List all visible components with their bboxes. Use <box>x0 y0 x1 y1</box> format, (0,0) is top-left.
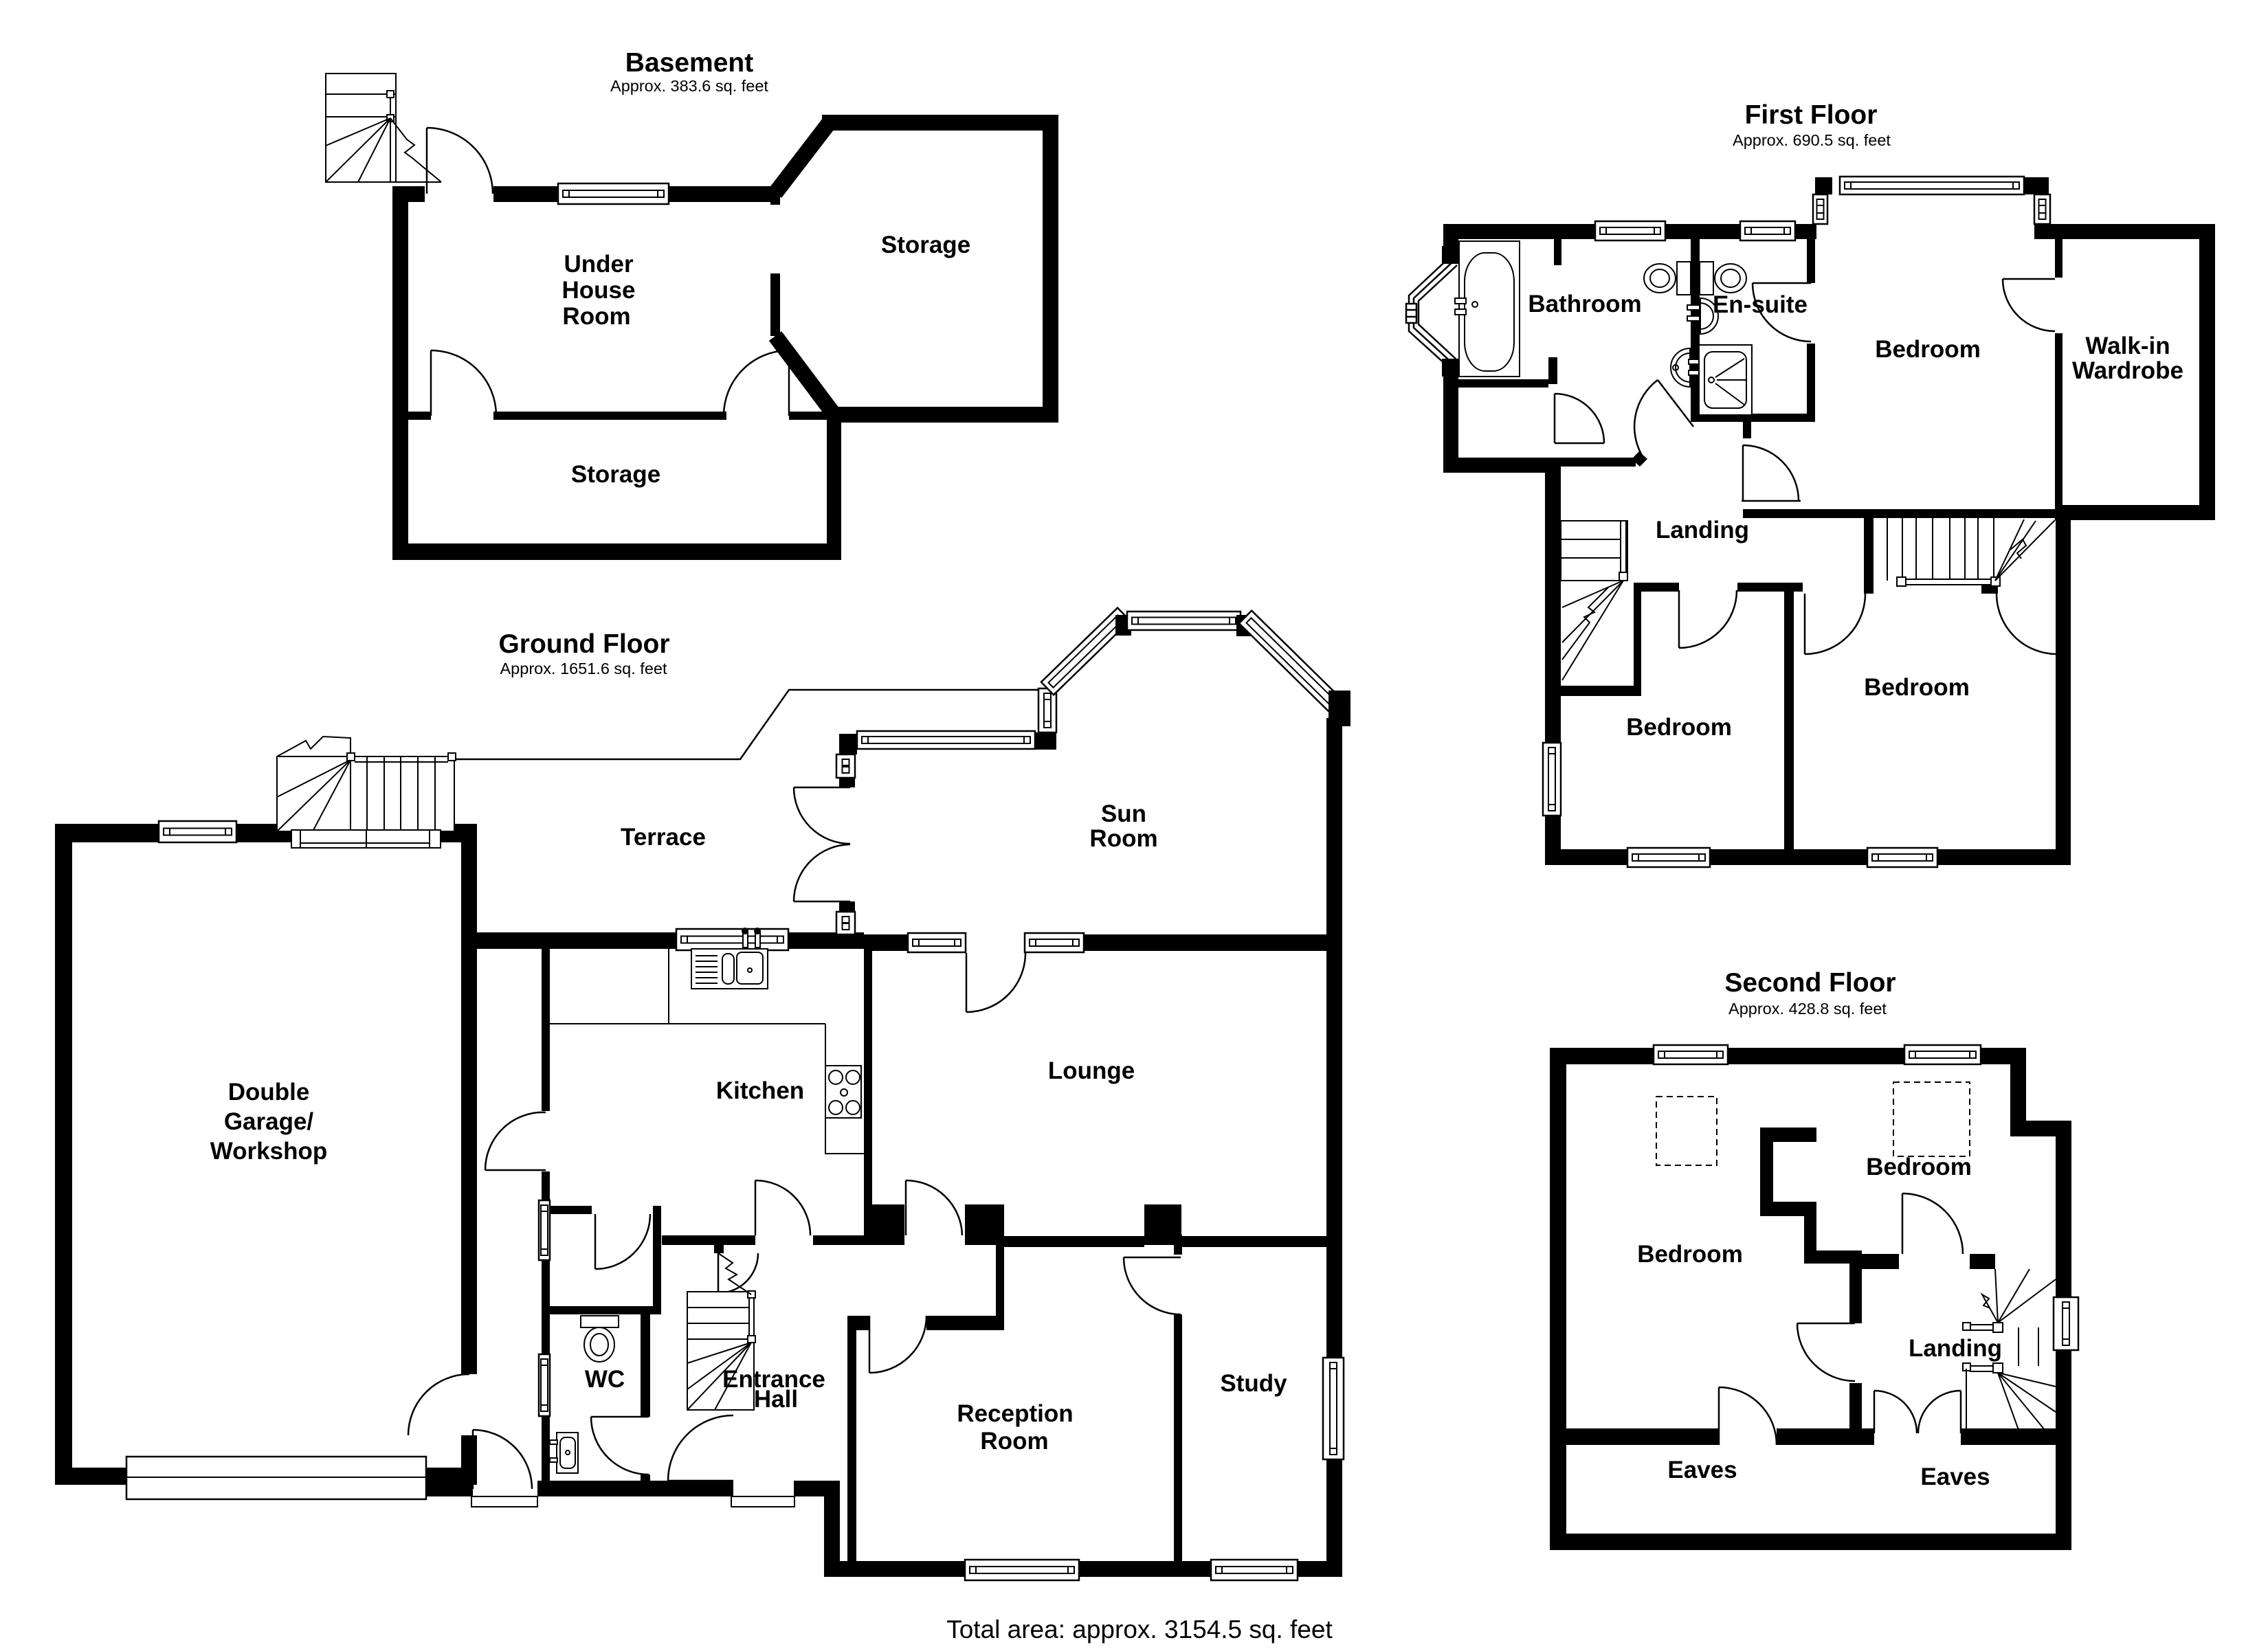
svg-text:Bedroom: Bedroom <box>1637 1241 1743 1268</box>
svg-text:Landing: Landing <box>1656 517 1749 543</box>
svg-text:House: House <box>562 277 636 304</box>
svg-text:Approx. 1651.6 sq. feet: Approx. 1651.6 sq. feet <box>500 660 667 677</box>
svg-text:Approx. 428.8 sq. feet: Approx. 428.8 sq. feet <box>1728 1000 1887 1018</box>
svg-text:Second Floor: Second Floor <box>1724 968 1895 998</box>
svg-text:First Floor: First Floor <box>1745 100 1878 130</box>
svg-text:Workshop: Workshop <box>210 1138 327 1165</box>
svg-text:Total area: approx. 3154.5 sq.: Total area: approx. 3154.5 sq. feet <box>946 1615 1333 1644</box>
svg-text:Storage: Storage <box>881 232 970 258</box>
svg-text:WC: WC <box>585 1366 625 1393</box>
svg-text:Bedroom: Bedroom <box>1875 336 1981 363</box>
svg-text:Room: Room <box>562 303 630 330</box>
svg-text:En-suite: En-suite <box>1713 291 1808 318</box>
svg-text:Approx. 690.5 sq. feet: Approx. 690.5 sq. feet <box>1733 131 1891 149</box>
svg-text:Basement: Basement <box>625 48 753 78</box>
svg-text:Storage: Storage <box>571 461 660 488</box>
svg-text:Ground Floor: Ground Floor <box>498 629 669 659</box>
svg-text:Bedroom: Bedroom <box>1864 674 1970 701</box>
svg-text:Room: Room <box>980 1428 1048 1455</box>
svg-text:Wardrobe: Wardrobe <box>2072 357 2183 384</box>
svg-text:Walk-in: Walk-in <box>2085 333 2170 359</box>
svg-text:Lounge: Lounge <box>1048 1057 1135 1084</box>
svg-text:Approx. 383.6 sq. feet: Approx. 383.6 sq. feet <box>610 77 768 95</box>
svg-text:Eaves: Eaves <box>1920 1463 1990 1490</box>
svg-text:Bathroom: Bathroom <box>1528 291 1641 317</box>
svg-text:Study: Study <box>1220 1370 1287 1397</box>
svg-text:Kitchen: Kitchen <box>716 1077 804 1104</box>
svg-text:Terrace: Terrace <box>621 824 706 851</box>
svg-text:Sun: Sun <box>1101 800 1146 827</box>
svg-text:Garage/: Garage/ <box>224 1108 314 1135</box>
svg-text:Bedroom: Bedroom <box>1626 714 1732 741</box>
svg-text:Hall: Hall <box>754 1386 798 1413</box>
svg-text:Reception: Reception <box>957 1400 1073 1427</box>
svg-text:Bedroom: Bedroom <box>1866 1154 1972 1180</box>
svg-text:Eaves: Eaves <box>1667 1457 1737 1483</box>
svg-text:Room: Room <box>1089 825 1157 852</box>
svg-text:Under: Under <box>564 251 634 278</box>
svg-text:Landing: Landing <box>1909 1335 2002 1362</box>
svg-text:Double: Double <box>228 1079 310 1106</box>
